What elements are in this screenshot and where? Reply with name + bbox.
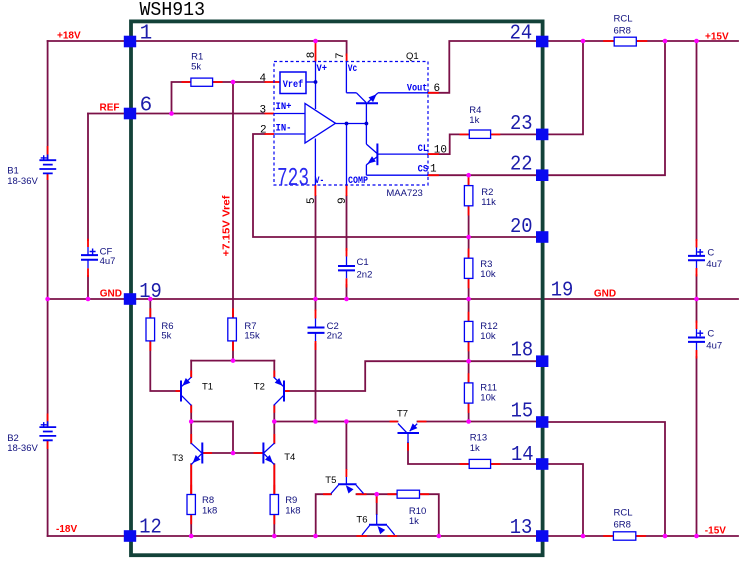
svg-text:T1: T1 (202, 381, 213, 392)
svg-text:V+: V+ (317, 64, 328, 75)
svg-text:723: 723 (277, 163, 309, 193)
svg-text:4u7: 4u7 (706, 340, 722, 351)
svg-text:19: 19 (139, 281, 162, 304)
svg-text:1: 1 (140, 23, 153, 46)
svg-text:4u7: 4u7 (706, 259, 722, 270)
svg-text:WSH913: WSH913 (140, 0, 206, 21)
svg-text:4u7: 4u7 (100, 256, 116, 267)
svg-text:6: 6 (140, 94, 153, 117)
svg-text:RCL: RCL (614, 507, 633, 518)
svg-text:1k: 1k (469, 115, 479, 126)
svg-text:18: 18 (511, 340, 534, 363)
svg-text:1k8: 1k8 (202, 506, 217, 517)
svg-text:22: 22 (510, 154, 533, 177)
svg-text:Vc: Vc (348, 64, 358, 75)
svg-text:T3: T3 (172, 453, 183, 464)
svg-text:10: 10 (434, 145, 447, 157)
svg-text:R8: R8 (202, 495, 214, 506)
svg-text:4: 4 (260, 73, 267, 85)
svg-text:+18V: +18V (57, 31, 81, 42)
svg-text:R13: R13 (470, 433, 487, 444)
svg-text:T4: T4 (284, 452, 295, 463)
svg-text:3: 3 (260, 105, 267, 117)
svg-text:T5: T5 (325, 475, 336, 486)
svg-text:18-36V: 18-36V (7, 176, 38, 187)
svg-text:C: C (707, 329, 714, 340)
svg-text:MAA723: MAA723 (386, 188, 422, 199)
svg-text:6: 6 (434, 83, 441, 95)
svg-text:1k: 1k (470, 443, 480, 454)
svg-text:Q1: Q1 (406, 51, 419, 62)
svg-text:1k8: 1k8 (285, 506, 300, 517)
svg-text:20: 20 (510, 216, 533, 239)
svg-text:2: 2 (260, 125, 267, 137)
svg-text:B1: B1 (7, 166, 19, 177)
svg-text:-18V: -18V (56, 524, 77, 535)
svg-text:V-: V- (315, 176, 325, 187)
svg-text:GND: GND (594, 289, 616, 300)
svg-text:Vout: Vout (407, 84, 428, 95)
svg-text:7: 7 (335, 52, 347, 59)
svg-text:T6: T6 (356, 515, 367, 526)
svg-text:18-36V: 18-36V (7, 443, 38, 454)
svg-text:IN+: IN+ (276, 102, 292, 113)
svg-text:IN-: IN- (276, 123, 292, 134)
svg-text:13: 13 (510, 517, 533, 540)
svg-text:10k: 10k (480, 393, 496, 404)
svg-text:5k: 5k (191, 62, 201, 73)
svg-text:COMP: COMP (348, 176, 368, 187)
svg-text:+7.15V Vref: +7.15V Vref (222, 195, 233, 257)
svg-text:6R8: 6R8 (614, 519, 631, 530)
svg-text:10k: 10k (480, 331, 496, 342)
svg-text:9: 9 (337, 197, 349, 204)
svg-text:Vref: Vref (283, 79, 304, 91)
svg-text:GND: GND (100, 289, 122, 300)
svg-text:5: 5 (306, 197, 318, 204)
svg-text:24: 24 (510, 22, 533, 45)
svg-text:T7: T7 (397, 408, 408, 419)
svg-text:19: 19 (551, 280, 574, 303)
svg-text:C: C (707, 247, 714, 258)
svg-text:8: 8 (306, 52, 318, 59)
svg-text:REF: REF (100, 102, 120, 113)
svg-text:CL: CL (418, 144, 429, 155)
svg-text:1k: 1k (409, 516, 419, 527)
svg-text:14: 14 (511, 444, 534, 467)
svg-text:RCL: RCL (614, 13, 633, 24)
svg-text:10k: 10k (480, 269, 496, 280)
svg-text:15k: 15k (244, 331, 260, 342)
svg-text:6R8: 6R8 (614, 26, 631, 37)
svg-text:-15V: -15V (705, 525, 726, 536)
svg-text:12: 12 (139, 517, 162, 540)
svg-text:1: 1 (430, 164, 437, 176)
svg-text:R9: R9 (285, 495, 297, 506)
svg-text:CS: CS (418, 165, 429, 176)
svg-text:2n2: 2n2 (327, 331, 343, 342)
svg-text:23: 23 (510, 113, 533, 136)
svg-text:11k: 11k (481, 197, 496, 208)
svg-text:+15V: +15V (705, 31, 729, 42)
svg-text:2n2: 2n2 (357, 269, 373, 280)
svg-text:5k: 5k (161, 331, 171, 342)
svg-text:T2: T2 (254, 381, 265, 392)
svg-text:15: 15 (511, 400, 534, 423)
svg-text:C1: C1 (357, 257, 369, 268)
